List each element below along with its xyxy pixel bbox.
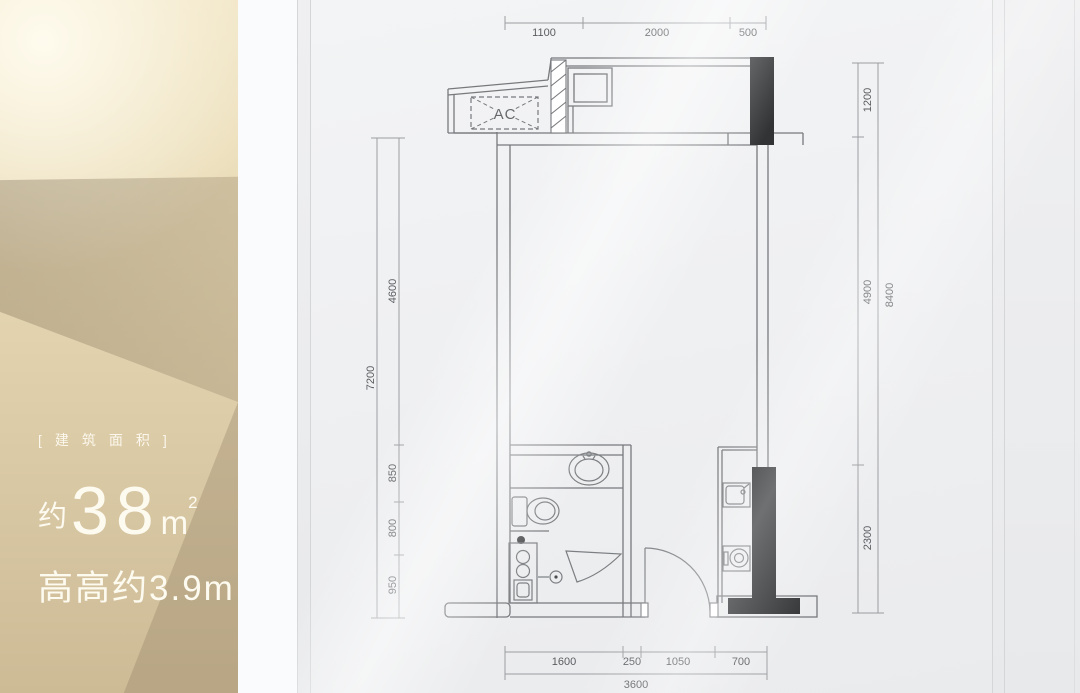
dim-left-total: 7200	[365, 366, 377, 390]
dim-right-1: 1200	[862, 88, 874, 112]
column-base	[728, 598, 800, 614]
dim-right-total: 8400	[884, 283, 896, 307]
ac-unit-box: AC	[471, 97, 538, 129]
kitchenette-counter	[509, 543, 537, 603]
panel-text-block: [建筑面积] 约38m2 高高约3.9m	[38, 430, 218, 611]
column-top-right	[750, 57, 774, 145]
ceiling-height-note: 高高约3.9m	[38, 560, 218, 611]
dim-top-3: 500	[739, 27, 757, 39]
dim-left-4: 950	[387, 576, 399, 594]
dim-left-3: 800	[387, 519, 399, 537]
dim-top-2: 2000	[645, 27, 669, 39]
dim-bottom-4: 700	[732, 656, 750, 668]
area-exponent: 2	[188, 493, 197, 512]
bathroom-fixtures	[509, 452, 621, 603]
structural-columns	[728, 57, 800, 614]
sink-unit	[723, 483, 750, 507]
toilet	[512, 497, 559, 526]
dim-left-1: 4600	[387, 279, 399, 303]
info-panel: [建筑面积] 约38m2 高高约3.9m	[0, 0, 238, 693]
cooktop-unit	[723, 546, 750, 571]
area-approx: 约	[38, 501, 69, 533]
ac-label: AC	[494, 106, 517, 123]
dim-right-2: 4900	[862, 280, 874, 304]
floorplan-page: AC	[0, 0, 1080, 693]
dim-bottom-1: 1600	[552, 656, 576, 668]
niche-appliances	[723, 483, 750, 571]
column-bottom-right	[752, 467, 776, 600]
dim-bottom-3: 1050	[666, 656, 690, 668]
dim-bottom-2: 250	[623, 656, 641, 668]
dim-bottom-total: 3600	[624, 679, 648, 691]
shower-area	[538, 551, 621, 583]
area-line: 约38m2	[38, 472, 218, 550]
entry-door	[641, 548, 718, 617]
area-value: 38	[71, 473, 161, 549]
dim-top-1: 1100	[532, 27, 556, 39]
area-unit: m	[161, 504, 189, 541]
hatched-wall	[551, 60, 566, 133]
wash-basin	[569, 452, 609, 485]
area-tag-label: [建筑面积]	[38, 430, 218, 450]
dim-right-3: 2300	[862, 526, 874, 550]
dim-left-2: 850	[387, 464, 399, 482]
